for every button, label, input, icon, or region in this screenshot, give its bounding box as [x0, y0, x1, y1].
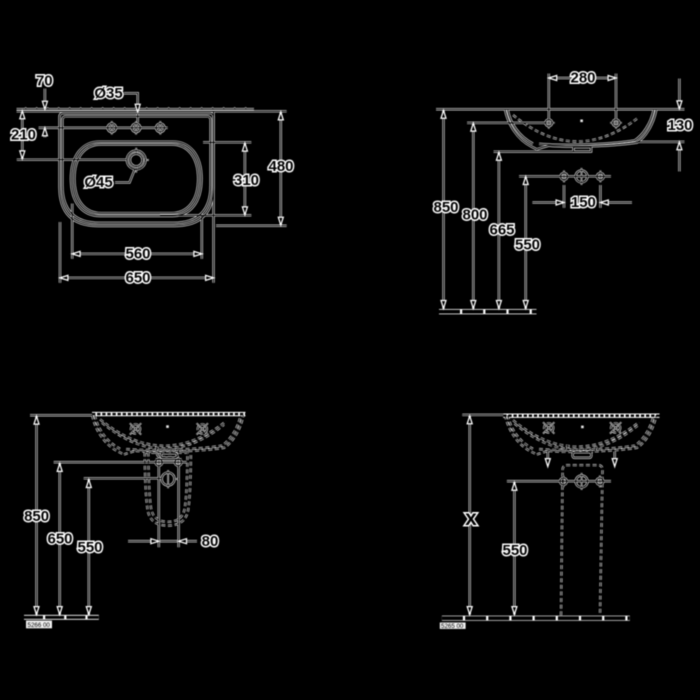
svg-text:560: 560	[125, 245, 150, 262]
svg-text:x: x	[465, 507, 477, 530]
svg-text:650: 650	[47, 531, 72, 548]
svg-text:800: 800	[462, 207, 487, 224]
svg-text:Ø35: Ø35	[94, 85, 122, 102]
svg-text:550: 550	[502, 542, 527, 559]
svg-text:210: 210	[11, 127, 36, 144]
svg-text:650: 650	[125, 269, 150, 286]
svg-text:280: 280	[570, 70, 595, 87]
svg-text:5266 00: 5266 00	[28, 622, 51, 629]
svg-text:80: 80	[202, 533, 219, 550]
svg-text:150: 150	[571, 194, 596, 211]
svg-text:550: 550	[77, 539, 102, 556]
svg-text:850: 850	[24, 508, 49, 525]
svg-text:550: 550	[515, 237, 540, 254]
svg-text:310: 310	[234, 172, 259, 189]
svg-text:5265 00: 5265 00	[441, 623, 464, 630]
svg-text:Ø45: Ø45	[84, 174, 112, 191]
svg-text:850: 850	[433, 199, 458, 216]
svg-text:665: 665	[489, 222, 514, 239]
svg-text:70: 70	[36, 73, 53, 90]
svg-text:480: 480	[268, 158, 293, 175]
svg-text:130: 130	[667, 117, 692, 134]
